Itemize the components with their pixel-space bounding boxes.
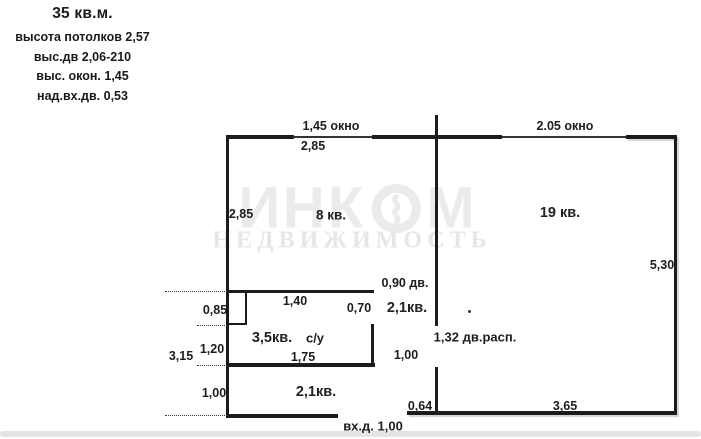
- wall-bathroom-right: [371, 324, 374, 366]
- dim-room8-height: 2,85: [229, 207, 253, 221]
- dim-entrance-door: вх.д. 1,00: [343, 419, 403, 434]
- room-label-wc: с/у: [306, 331, 324, 346]
- extension-line-bath: [197, 365, 227, 366]
- dim-bath-bottom: 1,75: [291, 350, 315, 364]
- dim-room19-height: 5,30: [650, 258, 674, 272]
- wall-top-right-segment: [626, 135, 677, 139]
- window-left-line: [293, 136, 373, 138]
- dim-bath-door: 0,70: [347, 301, 371, 315]
- room-label-corridor: 2,1кв.: [296, 384, 336, 400]
- room-label-bathroom: 3,5кв.: [252, 330, 292, 346]
- floorplan-canvas: 35 кв.м. высота потолков 2,57 выс.дв 2,0…: [0, 0, 701, 439]
- dim-room19-bottom: 3,65: [553, 399, 577, 413]
- legend-line-entry-door: над.вх.дв. 0,53: [5, 87, 160, 107]
- wall-shaft-right: [245, 291, 247, 325]
- room-label-8: 8 кв.: [316, 208, 346, 223]
- wall-partition-lower: [435, 367, 438, 413]
- extension-line-top: [165, 291, 227, 292]
- wall-top-left-segment: [226, 135, 294, 139]
- stray-mark: [468, 310, 471, 313]
- dim-window-right: 2.05 окно: [537, 119, 594, 133]
- dim-door-partition: 1,32 дв.расп.: [434, 330, 517, 345]
- extension-line-shaft: [197, 325, 227, 326]
- wall-bottom-left: [226, 414, 338, 418]
- dim-bath-left: 1,20: [200, 342, 224, 356]
- wall-exterior-left: [226, 135, 229, 418]
- wall-bathroom-top: [226, 290, 374, 293]
- wall-bottom-right: [407, 411, 677, 415]
- room-label-hall: 2,1кв.: [387, 300, 427, 316]
- dim-bath-top: 1,40: [283, 294, 307, 308]
- dim-room8-width: 2,85: [301, 139, 325, 153]
- legend-line-ceiling: высота потолков 2,57: [5, 28, 160, 48]
- wall-partition-upper: [435, 115, 438, 326]
- dim-hall-height: 1,00: [394, 348, 418, 362]
- wall-shaft-bottom: [226, 323, 247, 325]
- dim-window-left: 1,45 окно: [303, 119, 360, 133]
- dim-shaft-height: 0,85: [203, 303, 227, 317]
- window-right-line: [502, 136, 627, 138]
- legend-line-window-height: выс. окон. 1,45: [5, 67, 160, 87]
- dim-corridor-bottom-right: 0,64: [408, 399, 432, 413]
- legend-line-door-height: выс.дв 2,06-210: [5, 48, 160, 68]
- dim-door-hall: 0,90 дв.: [382, 276, 429, 290]
- watermark-subtitle: НЕДВИЖИМОСТЬ: [212, 228, 491, 255]
- extension-line-bottom: [165, 415, 227, 416]
- total-area-label: 35 кв.м.: [5, 5, 160, 23]
- legend-block: 35 кв.м. высота потолков 2,57 выс.дв 2,0…: [5, 5, 160, 106]
- room-label-19: 19 кв.: [540, 205, 580, 221]
- wall-exterior-right: [674, 135, 677, 415]
- dim-corridor-left: 1,00: [202, 386, 226, 400]
- dim-left-total: 3,15: [169, 349, 193, 363]
